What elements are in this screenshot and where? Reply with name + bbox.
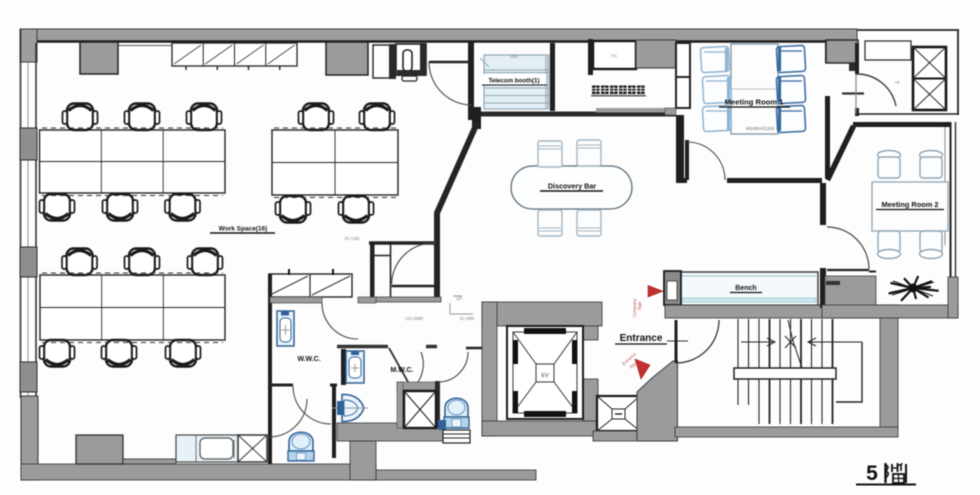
svg-text:+6: +6 <box>895 80 900 85</box>
svg-text:Discovery Bar: Discovery Bar <box>548 182 597 191</box>
svg-text:FL+150: FL+150 <box>345 236 360 241</box>
svg-text:W2400×D1200: W2400×D1200 <box>746 126 775 131</box>
svg-text:Sign: Sign <box>637 301 642 310</box>
svg-text:PS: PS <box>611 54 617 59</box>
svg-text:FL+400: FL+400 <box>460 316 475 321</box>
svg-text:M.W.C.: M.W.C. <box>391 367 414 374</box>
svg-text:EV: EV <box>541 373 549 379</box>
svg-text:5: 5 <box>866 462 878 485</box>
svg-text:Meeting Room 2: Meeting Room 2 <box>881 200 938 209</box>
svg-text:CH=2480: CH=2480 <box>405 316 423 321</box>
svg-text:UP: UP <box>456 296 462 301</box>
svg-text:Entrance: Entrance <box>620 333 663 344</box>
svg-text:Work Space(16): Work Space(16) <box>219 226 268 233</box>
svg-text:Meeting Room 1: Meeting Room 1 <box>725 98 784 107</box>
svg-text:Telecom booth(1): Telecom booth(1) <box>488 78 539 85</box>
svg-text:Bench: Bench <box>735 285 756 292</box>
svg-text:W.W.C.: W.W.C. <box>297 356 320 363</box>
svg-text:web: web <box>510 54 518 59</box>
